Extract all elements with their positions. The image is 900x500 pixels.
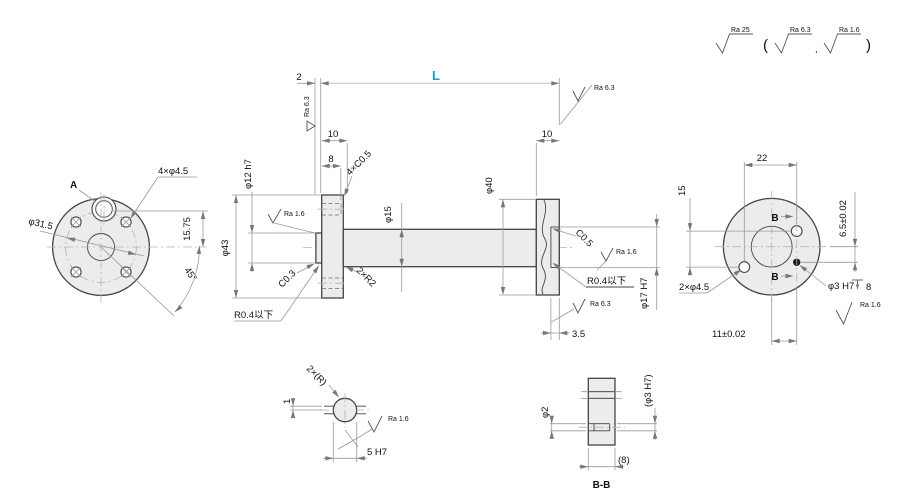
alt-roughness-1-label: Ra 6.3 [790,27,811,34]
shaft-dia-label: φ15 [383,206,394,223]
ref-dia-label: (φ3 H7) [643,374,654,407]
fillet-max-right-label: R0.4以下 [587,276,626,287]
section-bb-view: φ2 (φ3 H7) (8) B-B [540,374,657,491]
angle-label: 45° [182,265,199,283]
offset-11-label: 11±0.02 [712,329,746,340]
bore-dia-label: φ17 H7 [639,277,650,309]
ref-8-label: (8) [618,455,630,466]
ra16-pin-label: Ra 1.6 [860,302,881,309]
paren-close: ) [866,37,871,54]
general-roughness-label: Ra 25 [731,27,750,34]
ra63-top-right-label: Ra 6.3 [594,85,615,92]
dim-8-label: 8 [328,154,333,165]
ra16-detail-label: Ra 1.6 [388,416,409,423]
dim-22-label: 22 [757,153,768,164]
paren-open: ( [763,37,768,54]
left-flange-view: A 4×φ4.5 φ31.5 15.75 45° [27,166,208,316]
drawing-canvas: Ra 25 ( Ra 6.3 , Ra 1.6 ) A 4× [0,0,900,500]
keyslot-detail-view: 2×(R) 1 Ra 1.6 5 H7 [282,363,409,462]
boss-dia-label: φ12 h7 [243,159,254,189]
length-l-label: L [432,68,440,83]
pin-depth-label: 8 [866,282,871,293]
section-b-top-label: B [771,213,778,224]
flange-dia-label: φ43 [220,240,231,257]
ra63-bottom-right-label: Ra 6.3 [590,301,611,308]
hole-dia-label: φ2 [540,407,551,418]
right-flange-view: 22 B B 6.5±0.02 15 2×φ4.5 φ3 H7 [677,153,881,345]
right-flange-profile [536,199,559,295]
flange2-dia-label: φ40 [484,177,495,194]
hole-offset-label: 15.75 [182,217,193,241]
slot-width-label: 5 H7 [367,447,387,458]
technical-drawing-page: Ra 25 ( Ra 6.3 , Ra 1.6 ) A 4× [0,0,900,500]
alt-roughness-2-label: Ra 1.6 [839,27,860,34]
surface-finish-note: Ra 25 ( Ra 6.3 , Ra 1.6 ) [716,27,871,55]
dim-10-left-label: 10 [328,129,339,140]
radii-label: 2×(R) [304,363,329,388]
datum-a-label: A [70,180,77,191]
fillet-max-left-label: R0.4以下 [234,310,273,321]
ra16-right-label: Ra 1.6 [616,249,637,256]
bore-chamfer-label: C0.5 [573,227,595,249]
main-shaft-view: L 2 Ra 6.3 10 8 4×C0.5 φ12 h7 [220,68,660,340]
boss-length-label: 2 [296,72,301,83]
fillets-label: 2×R2 [354,265,378,289]
dim-10-right-label: 10 [542,129,553,140]
pin-hole-label: φ3 H7 [828,281,854,292]
holes-label: 2×φ4.5 [679,282,709,293]
chamfer-03-label: C0.3 [276,268,298,290]
shaft-profile [343,229,536,266]
bolt-circle-label: φ31.5 [27,216,53,232]
note-comma: , [815,44,818,55]
ra63-left-label: Ra 6.3 [304,96,311,117]
offset-65-label: 6.5±0.02 [838,200,849,237]
section-b-bottom-label: B [771,272,778,283]
dim-15-label: 15 [677,185,688,196]
bore-depth-label: 3.5 [572,329,585,340]
boss-profile [316,233,322,263]
dim-1-label: 1 [282,399,293,404]
chamfers-label: 4×C0.5 [344,148,374,178]
left-flange-profile [322,195,344,298]
bolt-holes-label: 4×φ4.5 [158,166,188,177]
section-title: B-B [593,480,611,491]
ra16-left-label: Ra 1.6 [284,211,305,218]
